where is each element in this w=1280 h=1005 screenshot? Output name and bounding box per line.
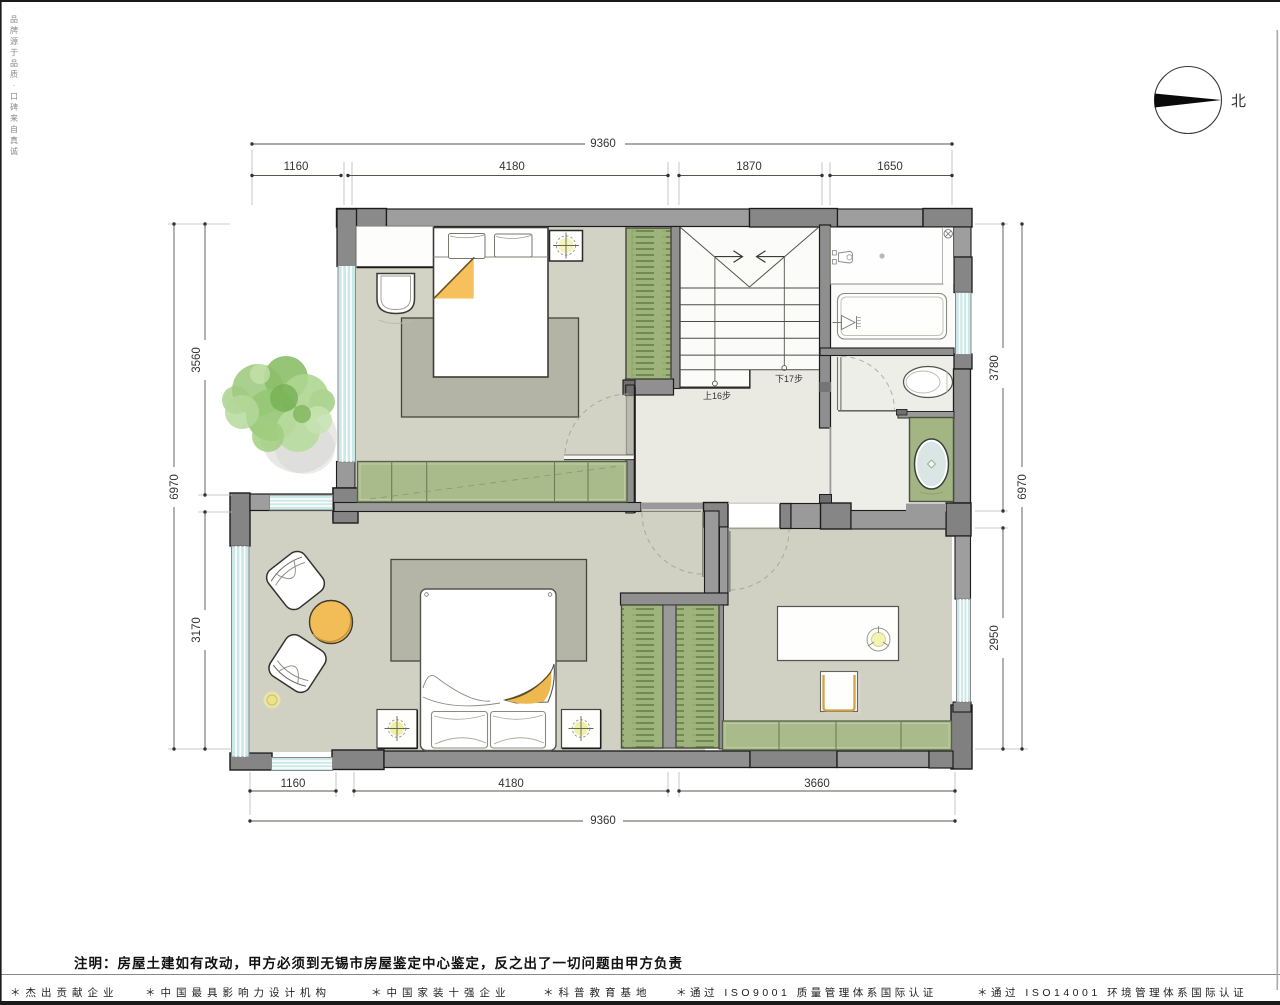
svg-text:品: 品 [10,15,18,24]
svg-text:4180: 4180 [499,161,525,173]
svg-text:自: 自 [10,124,18,134]
svg-text:3170: 3170 [191,617,203,643]
svg-text:＊中国家装十强企业: ＊中国家装十强企业 [371,986,511,999]
svg-text:来: 来 [10,114,18,123]
svg-text:1870: 1870 [736,161,762,173]
svg-text:＊中国最具影响力设计机构: ＊中国最具影响力设计机构 [145,986,331,999]
svg-text:2950: 2950 [989,625,1001,651]
svg-text:下17步: 下17步 [775,374,803,384]
svg-text:1160: 1160 [281,778,306,790]
svg-text:＊杰出贡献企业: ＊杰出贡献企业 [10,986,119,999]
svg-text:口: 口 [10,92,18,101]
svg-text:真: 真 [10,135,18,145]
svg-text:源: 源 [10,37,18,46]
svg-text:6970: 6970 [169,474,181,500]
svg-text:4180: 4180 [498,778,524,790]
svg-text:诚: 诚 [10,146,18,156]
svg-text:9360: 9360 [590,138,616,150]
svg-text:＊通过 ISO9001 质量管理体系国际认证: ＊通过 ISO9001 质量管理体系国际认证 [676,986,937,999]
svg-text:品: 品 [10,59,18,68]
svg-text:质: 质 [10,69,18,79]
svg-text:3780: 3780 [989,355,1001,381]
svg-text:·: · [13,81,16,90]
svg-text:1650: 1650 [877,161,903,173]
svg-text:于: 于 [10,48,18,57]
svg-text:3660: 3660 [804,778,830,790]
svg-text:碑: 碑 [10,102,18,112]
svg-text:北: 北 [1231,93,1246,110]
svg-text:9360: 9360 [590,815,616,827]
svg-text:上16步: 上16步 [703,391,731,401]
svg-text:3560: 3560 [191,347,203,373]
svg-text:注明：房屋土建如有改动，甲方必须到无锡市房屋鉴定中心鉴定，反: 注明：房屋土建如有改动，甲方必须到无锡市房屋鉴定中心鉴定，反之出了一切问题由甲方… [74,955,683,971]
svg-text:牌: 牌 [10,25,18,35]
svg-text:＊科普教育基地: ＊科普教育基地 [543,986,652,999]
svg-text:6970: 6970 [1017,474,1029,500]
svg-text:1160: 1160 [284,161,309,173]
svg-text:＊通过 ISO14001 环境管理体系国际认证: ＊通过 ISO14001 环境管理体系国际认证 [977,986,1247,999]
